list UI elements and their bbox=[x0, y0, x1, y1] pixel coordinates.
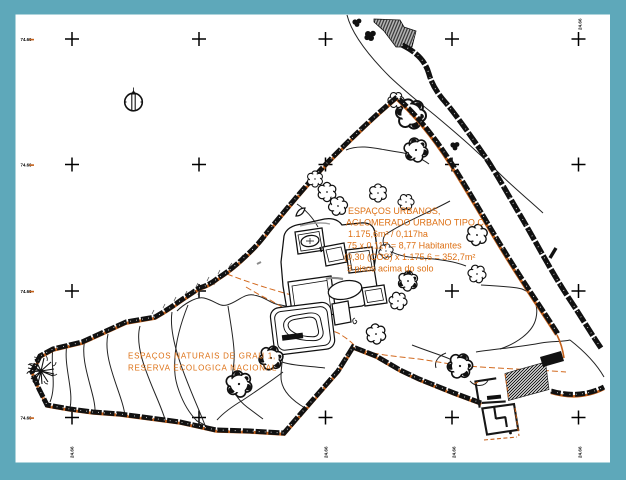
svg-text:75 x 0,117 = 8,77 Habitantes: 75 x 0,117 = 8,77 Habitantes bbox=[347, 241, 462, 251]
svg-text:24.66: 24.66 bbox=[452, 446, 457, 458]
svg-text:AGLOMERADO URBANO TIPO C: AGLOMERADO URBANO TIPO C bbox=[346, 218, 484, 228]
svg-text:3 pisos acima do solo: 3 pisos acima do solo bbox=[347, 264, 434, 274]
svg-text:24.66: 24.66 bbox=[70, 446, 75, 458]
svg-text:24.66: 24.66 bbox=[578, 446, 583, 458]
svg-text:(0,30 (COS) x 1.175,6 = 352,7m: (0,30 (COS) x 1.175,6 = 352,7m² bbox=[344, 252, 475, 262]
svg-text:RESERVA ECOLOGICA NACIONAL: RESERVA ECOLOGICA NACIONAL bbox=[128, 364, 277, 373]
svg-text:24.66: 24.66 bbox=[578, 18, 583, 30]
svg-text:ESPAÇOS URBANOS,: ESPAÇOS URBANOS, bbox=[348, 206, 440, 216]
svg-text:ESPAÇOS NATURAIS DE GRAU 1,: ESPAÇOS NATURAIS DE GRAU 1, bbox=[128, 352, 276, 361]
svg-text:1.175,6m² / 0,117ha: 1.175,6m² / 0,117ha bbox=[348, 229, 428, 239]
svg-text:24.66: 24.66 bbox=[324, 446, 329, 458]
